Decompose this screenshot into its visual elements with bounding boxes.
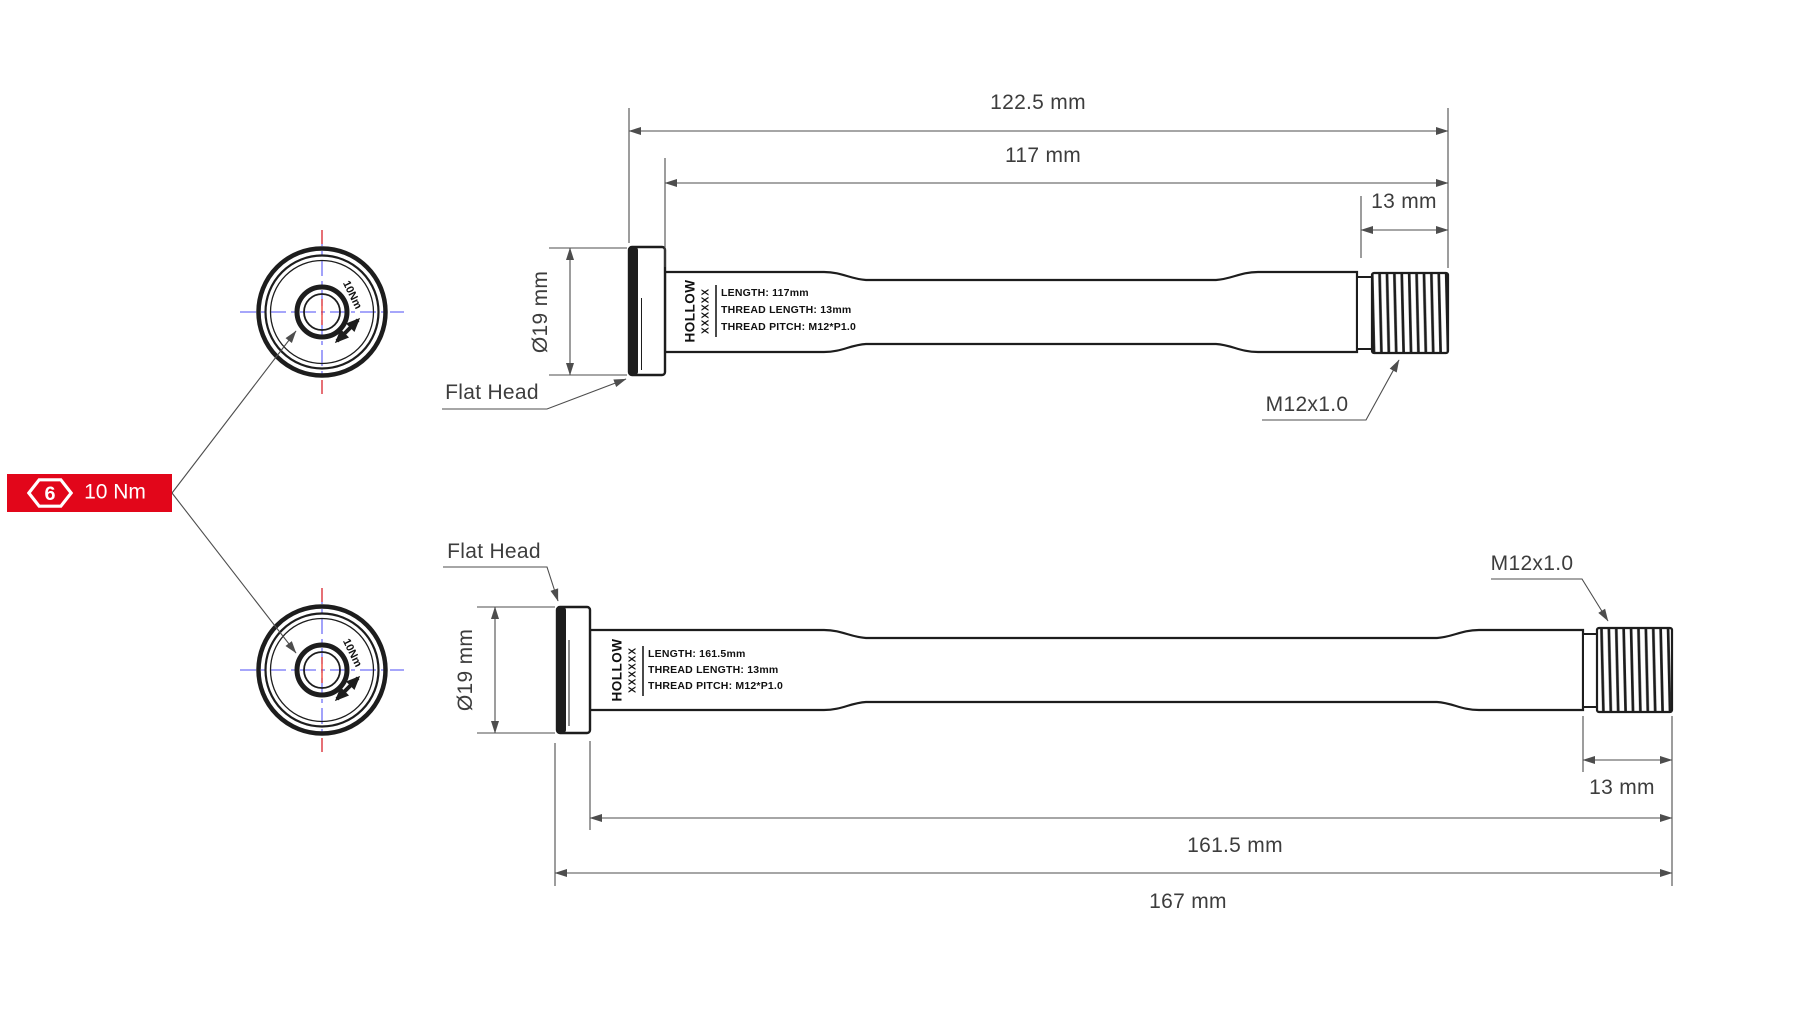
print-thread-pitch-bottom: THREAD PITCH: M12*P1.0 [648,680,783,692]
print-model-bottom: XXXXXX [628,647,639,693]
torque-badge-leaders [172,331,296,653]
dim-length-top: 117 mm [1005,144,1081,168]
print-brand-bottom: HOLLOW [610,639,625,702]
dim-head-diameter-bottom: Ø19 mm [454,629,478,711]
hex-size-number: 6 [45,483,56,505]
technical-drawing-canvas: 122.5 mm 117 mm 13 mm Ø19 mm Flat Head M… [0,0,1800,1013]
dim-length-bottom: 161.5 mm [1187,834,1283,858]
axle-line-drawing [0,0,1800,1013]
flat-head-label-top: Flat Head [445,381,539,405]
dim-thread-bottom: 13 mm [1589,776,1655,800]
hub-end-view-top [240,230,404,394]
print-brand-top: HOLLOW [683,280,698,343]
print-thread-length-bottom: THREAD LENGTH: 13mm [648,664,778,676]
print-length-bottom: LENGTH: 161.5mm [648,648,746,660]
print-thread-pitch-top: THREAD PITCH: M12*P1.0 [721,321,856,333]
print-thread-length-top: THREAD LENGTH: 13mm [721,304,851,316]
torque-spec-badge: 6 10 Nm [7,474,172,512]
print-length-top: LENGTH: 117mm [721,287,809,299]
axle-top-dimensions [442,108,1448,420]
flat-head-label-bottom: Flat Head [447,540,541,564]
thread-spec-label-top: M12x1.0 [1266,393,1349,417]
thread-spec-label-bottom: M12x1.0 [1491,552,1574,576]
dim-overall-top: 122.5 mm [990,91,1086,115]
print-model-top: XXXXXX [701,288,712,334]
dim-overall-bottom: 167 mm [1149,890,1227,914]
thread-section-top [1372,273,1448,353]
axle-bottom-dimensions [443,567,1672,886]
dim-head-diameter-top: Ø19 mm [529,271,553,353]
torque-value-label: 10 Nm [65,481,165,505]
dim-thread-top: 13 mm [1371,190,1437,214]
thread-section-bottom [1597,628,1672,712]
